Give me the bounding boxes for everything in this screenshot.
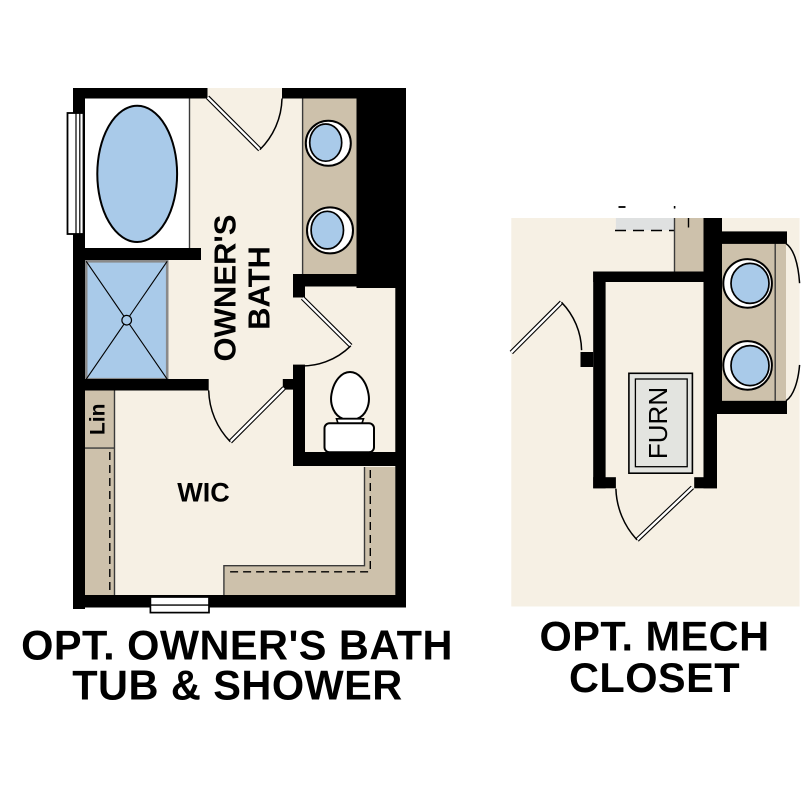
svg-text:Lin: Lin xyxy=(87,404,110,436)
svg-text:OPT. MECH: OPT. MECH xyxy=(539,613,769,660)
svg-text:CLOSET: CLOSET xyxy=(569,654,740,701)
svg-text:BATH: BATH xyxy=(242,246,277,330)
svg-text:TUB & SHOWER: TUB & SHOWER xyxy=(72,662,402,709)
svg-text:OWNER'S: OWNER'S xyxy=(208,215,243,362)
svg-text:WIC: WIC xyxy=(177,478,229,508)
svg-text:FURN: FURN xyxy=(643,387,673,459)
